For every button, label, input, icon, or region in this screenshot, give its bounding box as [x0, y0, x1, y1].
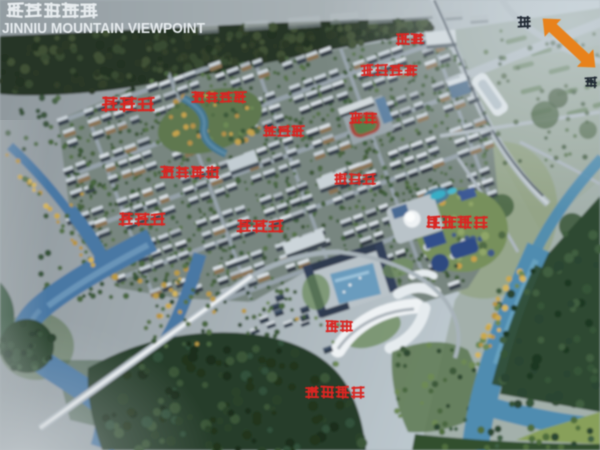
svg-text:JINNIU MOUNTAIN VIEWPOINT: JINNIU MOUNTAIN VIEWPOINT: [2, 20, 205, 37]
